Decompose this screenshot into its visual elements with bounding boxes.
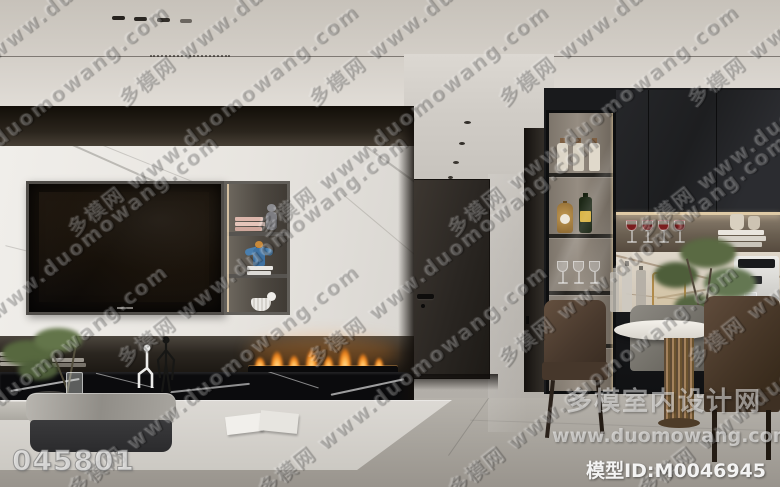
table-top (614, 320, 716, 340)
counter-bottle (622, 266, 632, 312)
model-id-label: 模型ID: (586, 460, 654, 482)
tv-logo (117, 307, 133, 309)
shelf-divider (227, 232, 287, 236)
spotlight (459, 142, 465, 145)
chair-back (544, 300, 606, 366)
cabinet-seam (716, 90, 717, 212)
figurine-sculptures (136, 334, 188, 398)
decor-books-pink (235, 217, 265, 231)
tv-screen (26, 181, 224, 315)
ceiling-reveal-line (0, 56, 780, 57)
site-url-caption: www.duomowang.com (552, 425, 776, 447)
bear-head (267, 204, 276, 212)
plant-foliage (18, 360, 58, 380)
book-page (259, 410, 299, 434)
figurine-head (255, 241, 263, 248)
coffee-table-top (26, 393, 176, 423)
track-light (134, 17, 147, 21)
spotlight (464, 121, 471, 124)
tv-reflection (39, 192, 209, 302)
door-threshold-shadow (406, 374, 498, 390)
wall-edge-shadow (398, 106, 414, 406)
model-id-caption: 模型ID:M0046945 (552, 456, 776, 483)
door-lock (421, 304, 425, 308)
interior-render-image: 多模网 www.duomowang.com 多模网 www.duomowang.… (0, 0, 780, 487)
interior-door (412, 179, 490, 379)
site-caption-block: 多模室内设计网 www.duomowang.com 模型ID:M0046945 (552, 381, 776, 483)
bear-body (266, 212, 277, 230)
cabinet-seam (648, 90, 649, 212)
counter-bottle (610, 272, 619, 312)
plant-foliage (34, 328, 82, 352)
track-light (180, 19, 192, 23)
upper-cabinets (616, 90, 780, 212)
hallway-wall-highlight (488, 174, 528, 432)
decor-ball (267, 292, 276, 301)
plant-foliage (704, 268, 756, 298)
bear-figurine (265, 204, 278, 230)
track-light (112, 16, 125, 20)
door-handle (526, 316, 529, 324)
ceiling-reveal-dotted (150, 55, 230, 59)
display-shelf-niche (224, 181, 290, 315)
hallway (404, 54, 554, 398)
door-handle (417, 294, 434, 299)
book-page (225, 413, 263, 435)
niche-light-strip (616, 212, 780, 215)
model-id-value: M0046945 (655, 460, 766, 482)
image-id-caption: 045801 (12, 444, 135, 477)
decor-books-white (247, 266, 273, 275)
site-name-caption: 多模室内设计网 (552, 381, 776, 418)
spotlight (453, 161, 459, 164)
shelf-led-strip (227, 184, 229, 312)
blue-figurine (245, 244, 273, 266)
figurine-body (253, 248, 265, 266)
soffit (0, 106, 414, 148)
open-book (224, 408, 300, 438)
track-light (157, 18, 170, 22)
chair-seat (542, 362, 608, 380)
